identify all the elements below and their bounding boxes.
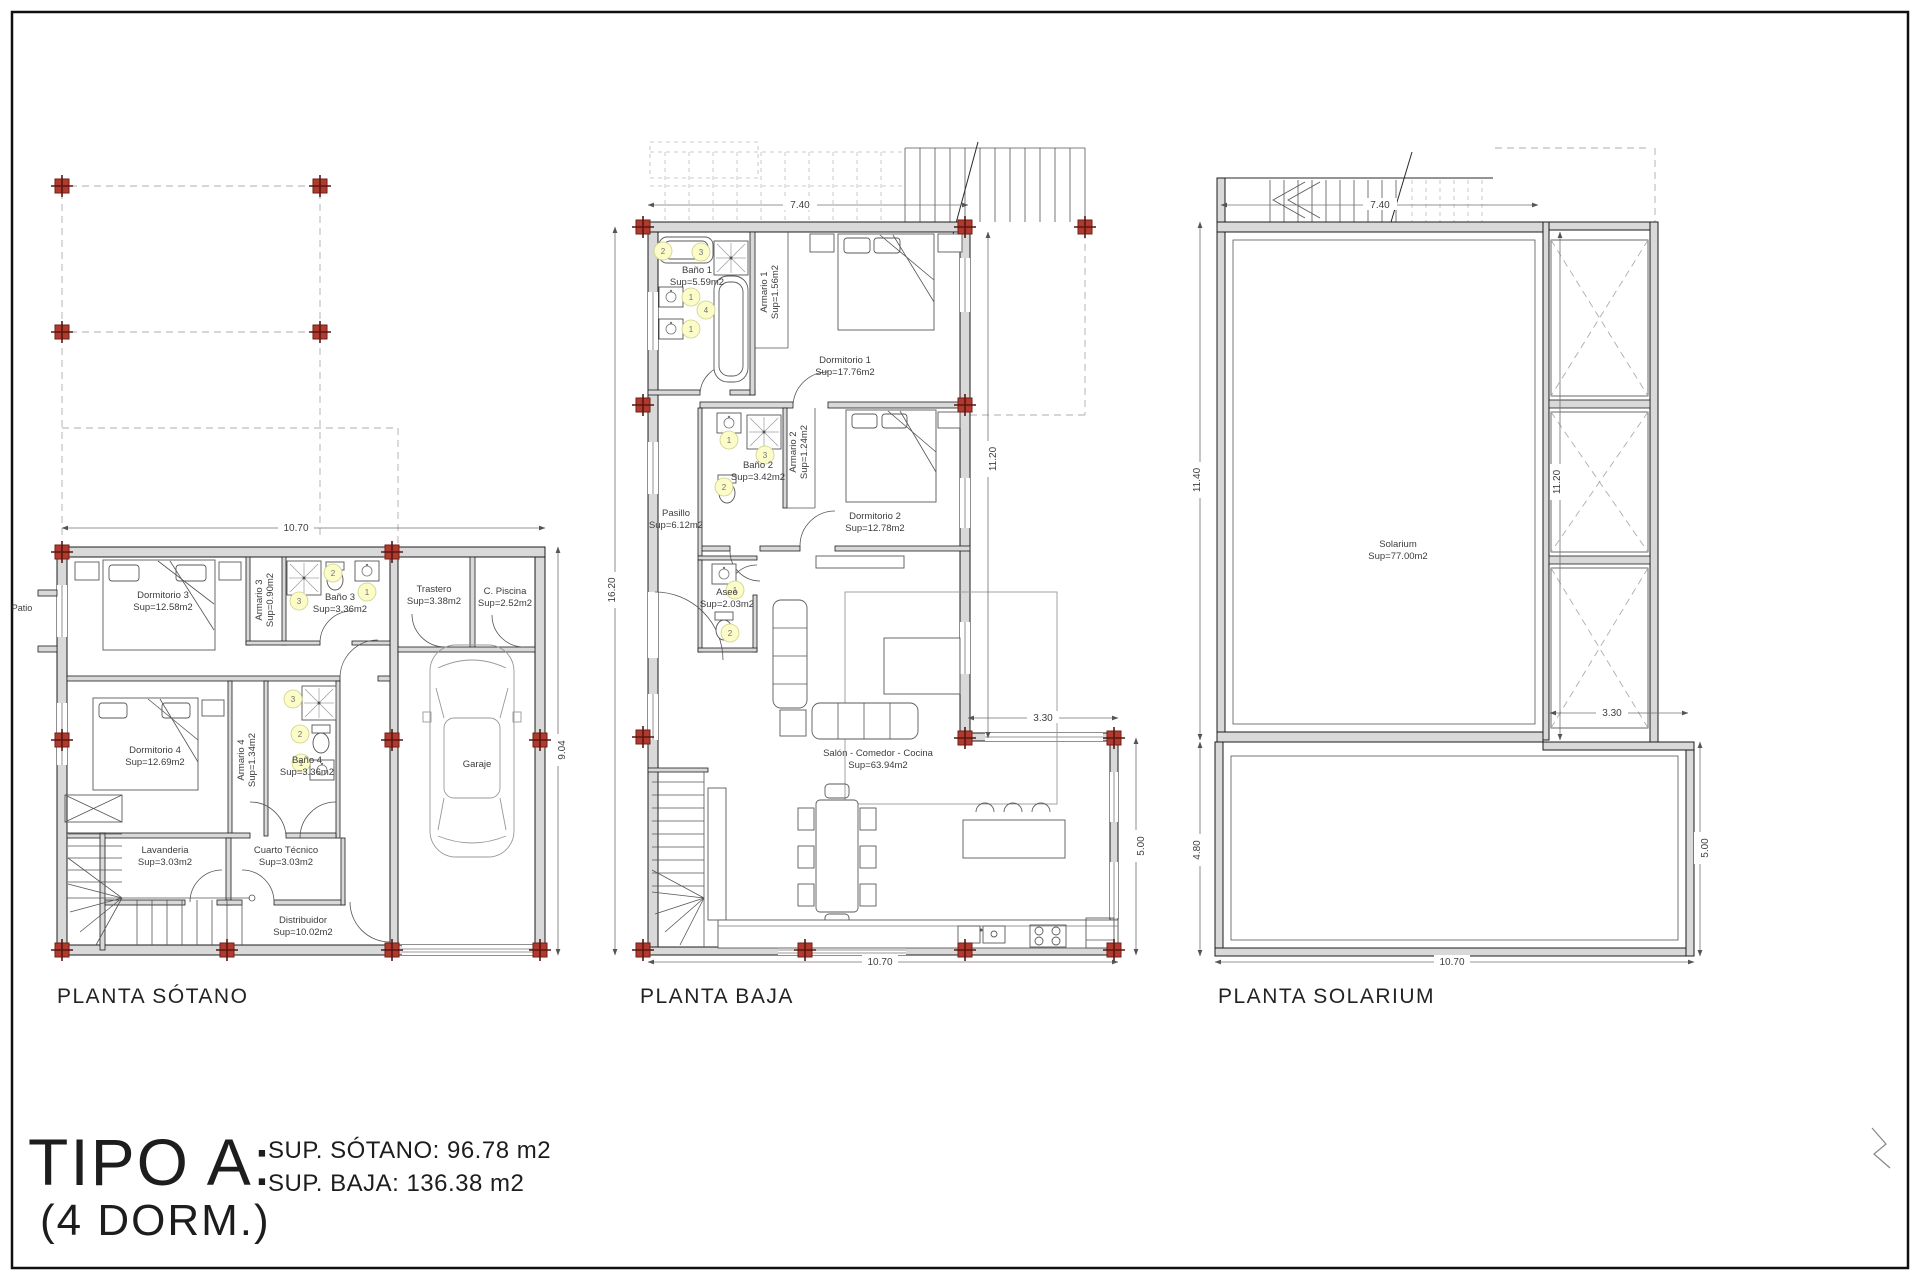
- room-label: Cuarto TécnicoSup=3.03m2: [254, 845, 318, 868]
- plan-title-solarium: PLANTA SOLARIUM: [1218, 985, 1435, 1008]
- room-label: Armario 4Sup=1.34m2: [236, 733, 258, 787]
- room-label: Salón - Comedor - CocinaSup=63.94m2: [823, 748, 934, 771]
- badge-number: 1: [727, 436, 732, 445]
- summary-sotano: SUP. SÓTANO: 96.78 m2: [268, 1137, 551, 1164]
- solarium-walls: [1215, 222, 1694, 956]
- patio-label: Patio: [12, 603, 33, 613]
- room-label: Armario 2Sup=1.24m2: [788, 425, 810, 479]
- sotano-room-labels: Dormitorio 3Sup=12.58m2 Armario 3Sup=0.9…: [12, 573, 532, 938]
- room-label: TrasteroSup=3.38m2: [407, 584, 461, 607]
- plan-sheet: 3 2 1 3 2 1 10.70 9.04 Dormitorio: [0, 0, 1920, 1280]
- edge-mark: [1872, 1128, 1890, 1168]
- dim-sotano-width: 10.70: [283, 523, 308, 534]
- type-block: TIPO A: (4 DORM.) SUP. SÓTANO: 96.78 m2 …: [28, 1125, 551, 1245]
- badge-number: 3: [291, 695, 296, 704]
- dim-solarium-left: 11.40: [1192, 467, 1203, 492]
- room-label: Dormitorio 2Sup=12.78m2: [845, 511, 904, 534]
- type-title: TIPO A:: [28, 1125, 273, 1199]
- badge-number: 2: [722, 483, 727, 492]
- room-label: SolariumSup=77.00m2: [1368, 539, 1427, 562]
- dim-solarium-left-lower: 4.80: [1192, 840, 1203, 860]
- sotano-lot-dashed-lines: [62, 186, 398, 545]
- plan-baja: 2 3 1 4 1 1 3 2 1 2 7.40 16.20: [607, 142, 1147, 1008]
- room-label: AseoSup=2.03m2: [700, 587, 754, 610]
- solarium-dimensions: 7.40 11.40 11.20 3.30 4.80 5.00 10.70: [1192, 198, 1711, 968]
- solarium-room-labels: SolariumSup=77.00m2: [1368, 539, 1427, 562]
- room-label: Armario 1Sup=1.56m2: [759, 265, 781, 319]
- room-label: Baño 2Sup=3.42m2: [731, 460, 785, 483]
- room-label: Garaje: [463, 759, 492, 770]
- solarium-pergola-cells: [1551, 240, 1648, 728]
- dim-baja-right: 11.20: [988, 446, 999, 471]
- badge-number: 3: [699, 248, 704, 257]
- badge-number: 2: [331, 569, 336, 578]
- dim-solarium-right-lower: 5.00: [1700, 838, 1711, 858]
- room-label: LavanderiaSup=3.03m2: [138, 845, 192, 868]
- plan-title-baja: PLANTA BAJA: [640, 985, 794, 1008]
- dim-baja-bottom: 10.70: [867, 957, 892, 968]
- summary-baja: SUP. BAJA: 136.38 m2: [268, 1170, 524, 1197]
- dim-solarium-bottom: 10.70: [1439, 957, 1464, 968]
- badge-number: 2: [298, 730, 303, 739]
- dim-solarium-top: 7.40: [1370, 200, 1390, 211]
- plan-title-sotano: PLANTA SÓTANO: [57, 985, 248, 1008]
- solarium-inner-lines: [1231, 240, 1678, 940]
- dim-baja-left: 16.20: [607, 577, 618, 602]
- room-label: Armario 3Sup=0.90m2: [254, 573, 276, 627]
- badge-number: 1: [365, 588, 370, 597]
- dim-sotano-height: 9.04: [557, 740, 568, 760]
- dim-baja-ext-width: 3.30: [1033, 713, 1053, 724]
- badge-number: 1: [689, 293, 694, 302]
- badge-number: 1: [689, 325, 694, 334]
- dim-baja-top: 7.40: [790, 200, 810, 211]
- car: [423, 645, 521, 857]
- room-label: Dormitorio 1Sup=17.76m2: [815, 355, 874, 378]
- plan-sotano: 3 2 1 3 2 1 10.70 9.04 Dormitorio: [12, 175, 568, 1008]
- dim-solarium-inner: 11.20: [1552, 469, 1563, 494]
- badge-number: 3: [297, 597, 302, 606]
- badge-number: 3: [763, 451, 768, 460]
- room-label: Dormitorio 4Sup=12.69m2: [125, 745, 184, 768]
- badge-number: 2: [728, 629, 733, 638]
- room-label: Baño 4Sup=3.36m2: [280, 755, 334, 778]
- solarium-stairs: [1217, 148, 1655, 232]
- plan-solarium: 7.40 11.40 11.20 3.30 4.80 5.00 10.70 So…: [1192, 148, 1711, 1008]
- dim-baja-ext-height: 5.00: [1136, 836, 1147, 856]
- room-label: DistribuidorSup=10.02m2: [273, 915, 332, 938]
- badge-number: 2: [661, 247, 666, 256]
- baja-stairs: [652, 772, 726, 947]
- room-label: Dormitorio 3Sup=12.58m2: [133, 590, 192, 613]
- dim-solarium-ext-width: 3.30: [1602, 708, 1622, 719]
- type-subtitle: (4 DORM.): [40, 1196, 271, 1245]
- badge-number: 4: [704, 306, 709, 315]
- room-label: C. PiscinaSup=2.52m2: [478, 586, 532, 609]
